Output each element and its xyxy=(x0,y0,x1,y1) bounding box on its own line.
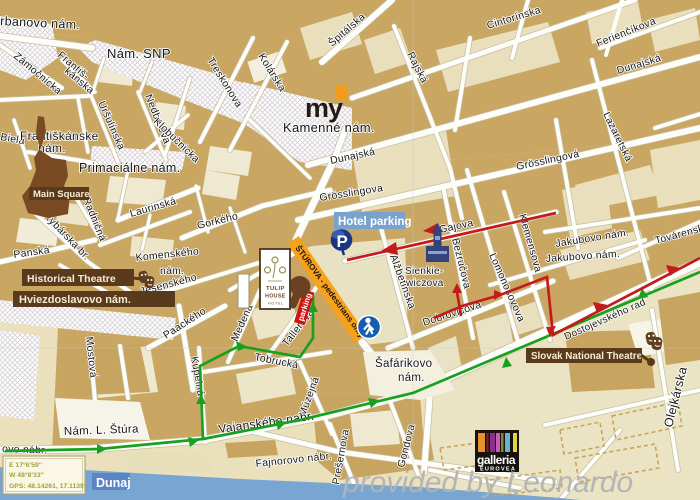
svg-text:Hotel parking: Hotel parking xyxy=(338,216,411,228)
svg-text:Hviezdoslavovo nám.: Hviezdoslavovo nám. xyxy=(19,294,131,306)
svg-text:nám.: nám. xyxy=(160,266,184,277)
svg-text:Nám. SNP: Nám. SNP xyxy=(107,46,171,61)
svg-text:wiczova: wiczova xyxy=(405,278,444,289)
svg-text:galleria: galleria xyxy=(477,453,516,467)
svg-text:nám.: nám. xyxy=(398,372,425,384)
svg-text:Šafárikovo: Šafárikovo xyxy=(375,357,432,370)
svg-text:Sienkie-: Sienkie- xyxy=(405,266,444,277)
svg-text:GPS: 48.14261, 17.11391: GPS: 48.14261, 17.11391 xyxy=(9,483,88,490)
svg-text:Nám. L. Štúra: Nám. L. Štúra xyxy=(64,422,140,438)
svg-text:my: my xyxy=(305,93,343,123)
svg-text:E 17°6'59'': E 17°6'59'' xyxy=(9,461,42,469)
svg-text:Main Square: Main Square xyxy=(33,189,90,200)
svg-text:Primaciálne nám.: Primaciálne nám. xyxy=(79,161,180,175)
svg-text:HOTEL: HOTEL xyxy=(268,302,284,306)
svg-text:Historical Theatre: Historical Theatre xyxy=(27,273,116,285)
svg-text:Slovak National Theatre: Slovak National Theatre xyxy=(531,351,643,362)
svg-text:HOUSE: HOUSE xyxy=(265,294,286,300)
svg-text:provided by Leonardo: provided by Leonardo xyxy=(342,466,633,499)
svg-text:P: P xyxy=(337,232,348,251)
svg-text:W 48°8'33'': W 48°8'33'' xyxy=(9,471,44,479)
svg-text:Dunaj: Dunaj xyxy=(96,476,131,490)
svg-text:TULIP: TULIP xyxy=(266,286,285,292)
